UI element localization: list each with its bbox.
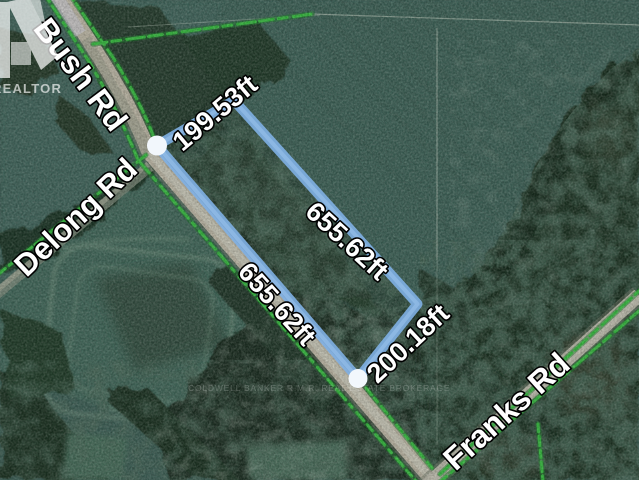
svg-text:REALTOR: REALTOR bbox=[0, 81, 62, 96]
svg-text:COLDWELL BANKER R.M.R. REAL: COLDWELL BANKER R.M.R. REAL ESTATE BROKE… bbox=[188, 383, 450, 393]
